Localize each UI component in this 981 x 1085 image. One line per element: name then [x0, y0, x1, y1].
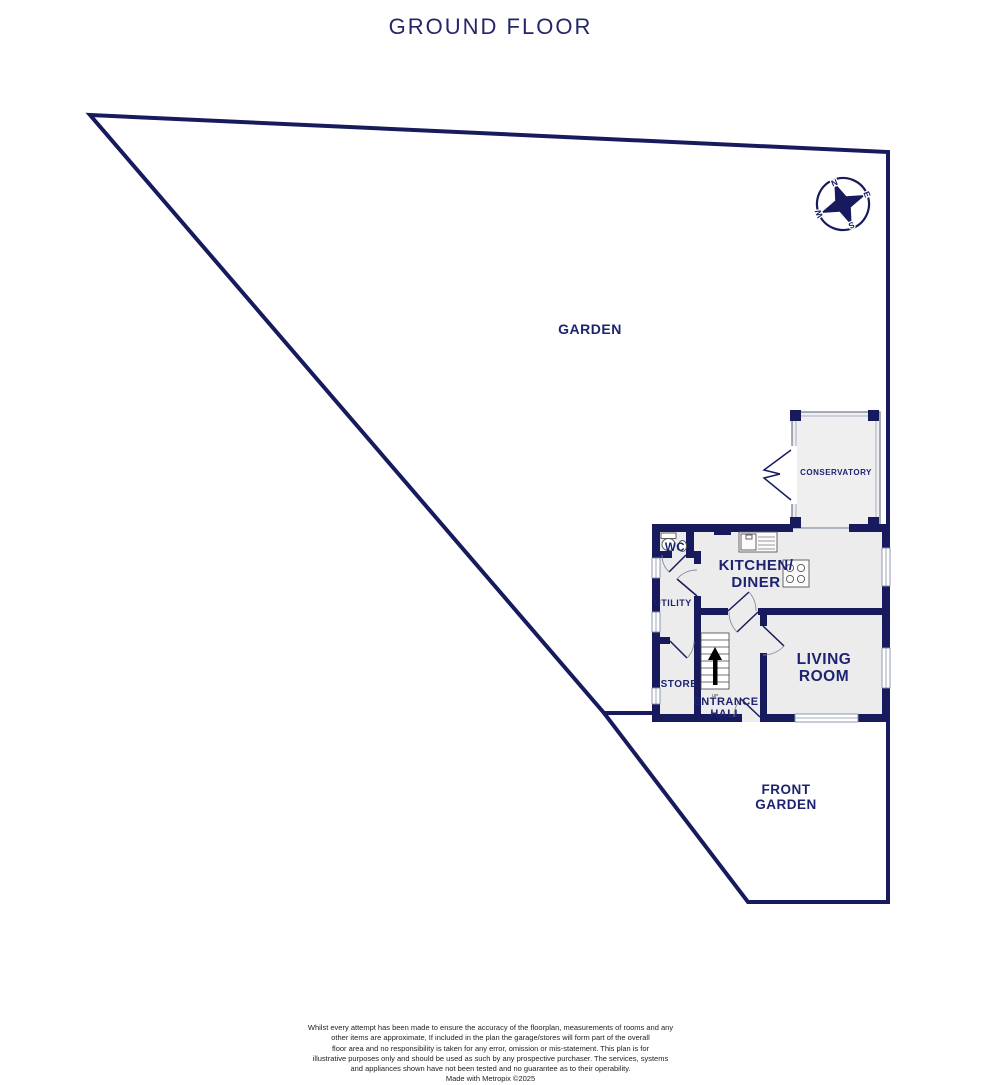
conservatory-label: CONSERVATORY [800, 468, 872, 477]
compass-icon: N E S W [804, 166, 882, 241]
footer-disclaimer: Whilst every attempt has been made to en… [0, 1023, 981, 1085]
disclaimer-line: Whilst every attempt has been made to en… [0, 1023, 981, 1033]
compass-star [812, 174, 874, 235]
disclaimer-line: other items are approximate, If included… [0, 1033, 981, 1043]
chimney-pier [714, 527, 731, 535]
kitchen-sink-icon [739, 532, 777, 552]
disclaimer-line: and appliances shown have not been teste… [0, 1064, 981, 1074]
kitchen-diner-label: KITCHEN/ [719, 557, 794, 574]
front-garden-label: FRONT [762, 782, 811, 797]
window [652, 558, 660, 578]
window [652, 612, 660, 632]
floor-plan: N E S W [0, 0, 981, 1080]
entrance-hall-label: ENTRANCE [693, 696, 758, 708]
living-room-label: ROOM [799, 668, 849, 685]
window [882, 548, 890, 586]
front-garden-label: GARDEN [755, 797, 817, 812]
window [652, 688, 660, 704]
kitchen-diner-label: DINER [731, 574, 780, 591]
staircase: UP [701, 633, 729, 698]
window [882, 648, 890, 688]
window [795, 714, 858, 722]
disclaimer-line: floor area and no responsibility is take… [0, 1044, 981, 1054]
utility-label: UTILITY [654, 598, 692, 608]
store-label: STORE [661, 679, 698, 690]
living-room-label: LIVING [797, 651, 852, 668]
entrance-hall-label: HALL [710, 708, 741, 720]
wc-label: WC [665, 542, 685, 554]
garden-label: GARDEN [558, 321, 622, 337]
compass-label-w: W [812, 207, 825, 219]
disclaimer-line: illustrative purposes only and should be… [0, 1054, 981, 1064]
